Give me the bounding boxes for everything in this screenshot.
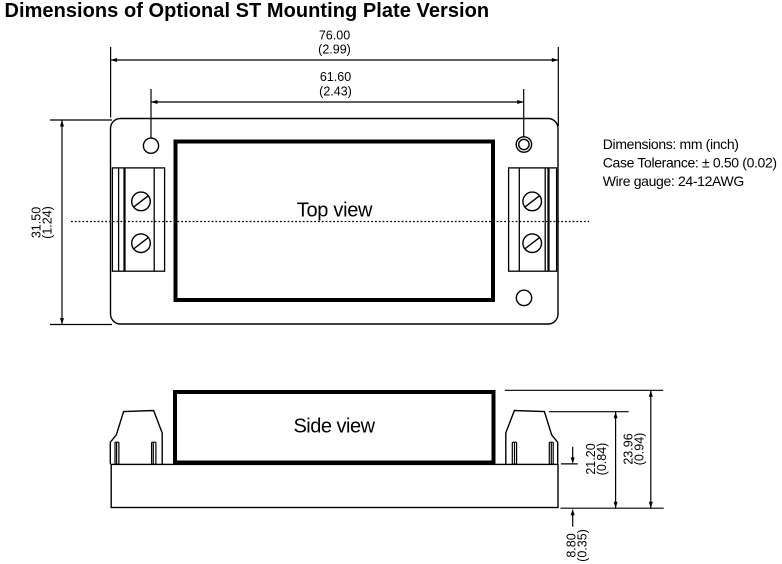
svg-text:(0.84): (0.84) bbox=[595, 443, 609, 476]
svg-text:Wire gauge: 24-12AWG: Wire gauge: 24-12AWG bbox=[603, 173, 744, 189]
svg-text:Case Tolerance: ± 0.50 (0.02): Case Tolerance: ± 0.50 (0.02) bbox=[603, 154, 777, 170]
svg-text:(2.99): (2.99) bbox=[318, 42, 351, 56]
svg-text:(1.24): (1.24) bbox=[41, 206, 55, 239]
svg-text:Side view: Side view bbox=[293, 416, 375, 438]
svg-text:(0.35): (0.35) bbox=[576, 529, 590, 562]
svg-text:Top view: Top view bbox=[297, 200, 373, 222]
svg-text:61.60: 61.60 bbox=[320, 70, 351, 84]
svg-text:(0.94): (0.94) bbox=[633, 433, 647, 466]
svg-text:Dimensions: mm (inch): Dimensions: mm (inch) bbox=[603, 136, 739, 152]
svg-text:76.00: 76.00 bbox=[319, 29, 350, 43]
svg-text:(2.43): (2.43) bbox=[319, 85, 352, 99]
svg-text:Dimensions of Optional ST Moun: Dimensions of Optional ST Mounting Plate… bbox=[5, 0, 490, 22]
